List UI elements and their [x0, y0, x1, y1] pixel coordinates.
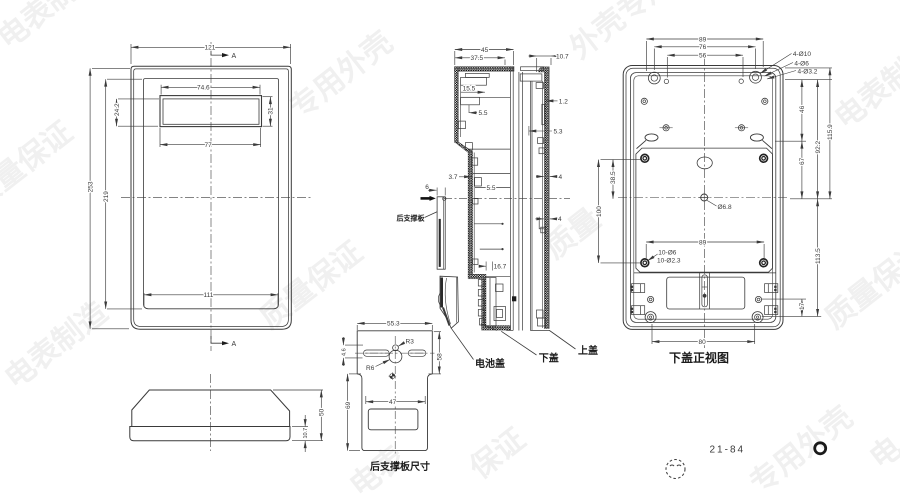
svg-text:17: 17 [799, 302, 806, 310]
svg-text:121: 121 [205, 45, 216, 52]
svg-text:电池盖: 电池盖 [475, 357, 505, 370]
svg-text:115.9: 115.9 [827, 124, 834, 140]
svg-text:55.3: 55.3 [387, 321, 400, 328]
svg-text:21-84: 21-84 [710, 445, 746, 456]
svg-text:50: 50 [318, 408, 325, 416]
svg-text:A: A [232, 341, 237, 348]
svg-text:上盖: 上盖 [578, 344, 598, 357]
svg-text:电表制造: 电表制造 [0, 296, 114, 396]
svg-text:4.6: 4.6 [341, 348, 347, 356]
svg-text:质量保证: 质量保证 [0, 116, 79, 216]
svg-text:80: 80 [699, 339, 707, 346]
svg-text:92.2: 92.2 [815, 140, 822, 153]
svg-text:253: 253 [87, 181, 94, 192]
svg-text:69: 69 [345, 401, 352, 409]
svg-text:电表制造: 电表制造 [0, 0, 107, 56]
svg-text:质量保证: 质量保证 [254, 236, 369, 336]
svg-text:113.5: 113.5 [815, 248, 822, 264]
svg-text:10.7: 10.7 [303, 428, 309, 439]
svg-text:6: 6 [425, 184, 429, 191]
svg-text:5.5: 5.5 [479, 110, 488, 117]
svg-text:保证: 保证 [464, 423, 532, 486]
svg-text:4: 4 [559, 174, 563, 181]
svg-text:1.2: 1.2 [559, 98, 568, 105]
svg-text:质量保证: 质量保证 [819, 236, 900, 336]
svg-text:74.6: 74.6 [197, 85, 210, 92]
svg-text:4-Ø3.2: 4-Ø3.2 [798, 69, 818, 76]
svg-text:外壳专用: 外壳专用 [564, 0, 679, 66]
svg-text:4-Ø6: 4-Ø6 [794, 61, 809, 68]
svg-text:38.5: 38.5 [610, 171, 617, 184]
svg-text:4-Ø10: 4-Ø10 [793, 51, 811, 58]
svg-text:电表制造: 电表制造 [829, 36, 900, 136]
svg-text:47: 47 [389, 399, 397, 406]
svg-text:R6: R6 [366, 365, 375, 372]
svg-text:电: 电 [864, 431, 900, 475]
svg-text:后支撑板: 后支撑板 [397, 214, 426, 223]
svg-text:专用外壳: 专用外壳 [284, 26, 399, 126]
svg-text:专用外壳: 专用外壳 [744, 401, 859, 500]
svg-text:46: 46 [799, 105, 806, 113]
svg-text:77: 77 [205, 142, 213, 149]
svg-text:10-Ø6: 10-Ø6 [658, 250, 676, 257]
svg-text:下盖: 下盖 [539, 351, 559, 364]
svg-text:58: 58 [437, 353, 444, 361]
svg-text:76: 76 [699, 44, 707, 51]
svg-text:5.5: 5.5 [487, 185, 496, 192]
svg-text:R3: R3 [406, 339, 415, 346]
svg-text:37.5: 37.5 [471, 55, 484, 62]
svg-text:100: 100 [596, 206, 603, 217]
svg-text:67: 67 [799, 157, 806, 165]
svg-text:10.7: 10.7 [556, 53, 569, 60]
svg-text:A: A [232, 53, 237, 60]
svg-text:Ø6.8: Ø6.8 [718, 204, 732, 211]
svg-text:31: 31 [267, 107, 274, 115]
svg-text:10-Ø2.3: 10-Ø2.3 [657, 258, 681, 265]
svg-text:219: 219 [103, 191, 110, 202]
svg-text:15.5: 15.5 [463, 86, 476, 93]
svg-text:后支撑板尺寸: 后支撑板尺寸 [370, 460, 430, 473]
svg-text:24.2: 24.2 [114, 103, 121, 116]
svg-text:5.3: 5.3 [554, 128, 563, 135]
svg-text:45: 45 [481, 47, 489, 54]
svg-text:16.7: 16.7 [494, 264, 507, 271]
svg-text:下盖正视图: 下盖正视图 [669, 350, 729, 365]
svg-text:89: 89 [699, 36, 707, 43]
svg-text:89: 89 [699, 239, 707, 246]
svg-text:3.7: 3.7 [449, 174, 458, 181]
svg-text:4: 4 [558, 216, 562, 223]
svg-text:111: 111 [204, 292, 214, 299]
svg-text:56: 56 [699, 53, 707, 60]
